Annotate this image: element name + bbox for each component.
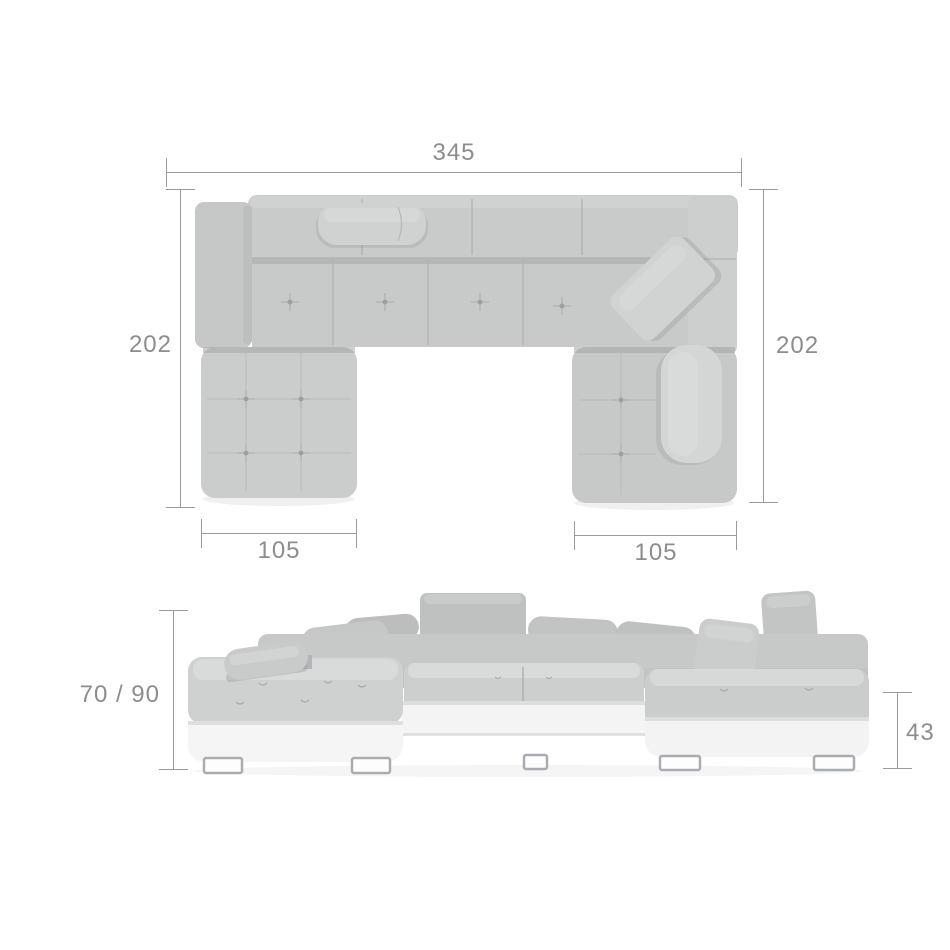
dim-line-base-height — [897, 692, 898, 769]
front-view-left-chaise — [188, 657, 403, 773]
dim-line-total-width — [166, 172, 742, 173]
dim-line-left-chaise-width — [201, 533, 357, 534]
chrome-leg — [660, 756, 700, 770]
chrome-leg — [524, 755, 547, 769]
top-view-right-armrest-cushion — [656, 345, 722, 465]
dim-label-right-depth: 202 — [776, 334, 819, 358]
front-view-right-chaise — [645, 669, 869, 770]
top-view-left-armrest — [195, 202, 252, 348]
dim-label-left-chaise-width: 105 — [229, 539, 329, 563]
front-view-center-headrest — [420, 593, 526, 641]
dim-label-total-width: 345 — [404, 141, 504, 165]
front-view-sofa — [188, 590, 869, 777]
front-view-center-section — [402, 663, 646, 769]
dim-label-height-range: 70 / 90 — [40, 683, 160, 707]
dim-label-base-height: 43 — [906, 721, 935, 745]
top-view-headrest-roll — [316, 203, 428, 248]
chrome-leg — [814, 756, 854, 770]
dim-line-left-depth — [180, 189, 181, 508]
dim-label-right-chaise-width: 105 — [606, 541, 706, 565]
chrome-leg — [204, 758, 242, 773]
chrome-leg — [352, 758, 390, 773]
top-view-left-chaise — [201, 347, 357, 498]
dim-line-height-range — [173, 610, 174, 770]
top-view-sofa — [195, 195, 738, 510]
dim-line-right-chaise-width — [574, 535, 737, 536]
sofa-dimension-diagram: 345 202 202 105 105 70 / 90 43 — [0, 0, 950, 950]
dim-line-right-depth — [763, 189, 764, 503]
dim-label-left-depth: 202 — [92, 333, 172, 357]
